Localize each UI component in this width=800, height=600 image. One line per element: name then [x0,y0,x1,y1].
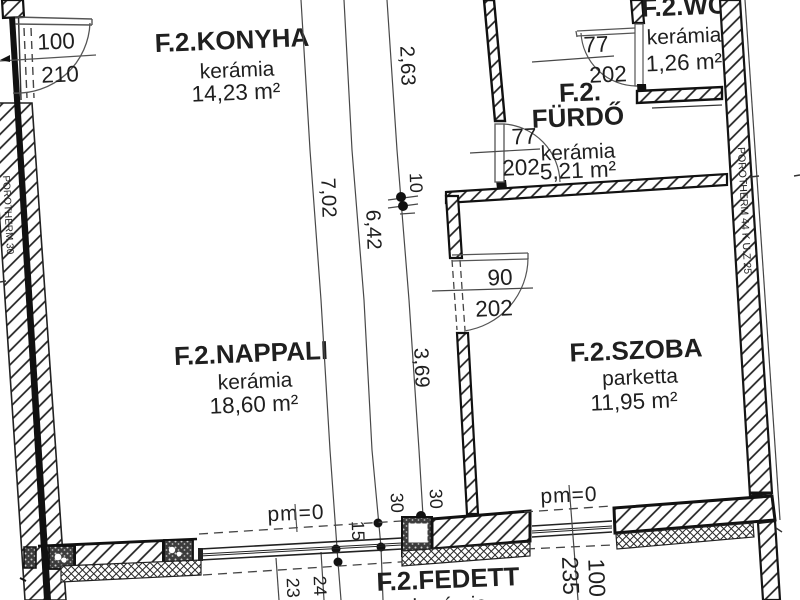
svg-text:F.2.KONYHA: F.2.KONYHA [154,22,310,58]
svg-text:235: 235 [557,556,584,595]
svg-text:FÜRDŐ: FÜRDŐ [531,100,625,134]
svg-text:202: 202 [475,295,514,322]
svg-text:100: 100 [583,558,610,597]
svg-text:30: 30 [426,488,447,509]
svg-text:23: 23 [283,577,304,598]
svg-text:2,63: 2,63 [395,45,419,86]
svg-text:210: 210 [41,61,80,88]
svg-text:1,26 m²: 1,26 m² [645,48,723,76]
svg-text:5,21 m²: 5,21 m² [539,156,617,184]
svg-text:7,02: 7,02 [316,177,340,218]
svg-text:F.2.FEDETT: F.2.FEDETT [376,561,520,597]
svg-text:6,42: 6,42 [361,209,385,250]
svg-text:202: 202 [502,154,541,181]
svg-text:90: 90 [487,264,513,290]
svg-text:202: 202 [589,61,628,88]
svg-text:77: 77 [583,31,609,57]
svg-text:F.2.WC: F.2.WC [641,0,728,23]
svg-text:F.2.NAPPALI: F.2.NAPPALI [173,335,328,371]
svg-text:11,95 m²: 11,95 m² [590,387,679,415]
svg-text:100: 100 [37,28,76,55]
svg-text:10: 10 [406,172,427,193]
svg-text:30: 30 [387,492,408,513]
svg-text:14,23 m²: 14,23 m² [191,78,281,107]
svg-text:18,60 m²: 18,60 m² [209,390,299,419]
svg-text:kerámia: kerámia [646,23,722,49]
svg-text:24: 24 [310,575,331,596]
svg-text:parketta: parketta [602,364,679,390]
svg-text:F.2.SZOBA: F.2.SZOBA [569,332,703,367]
svg-text:3,69: 3,69 [409,347,433,388]
